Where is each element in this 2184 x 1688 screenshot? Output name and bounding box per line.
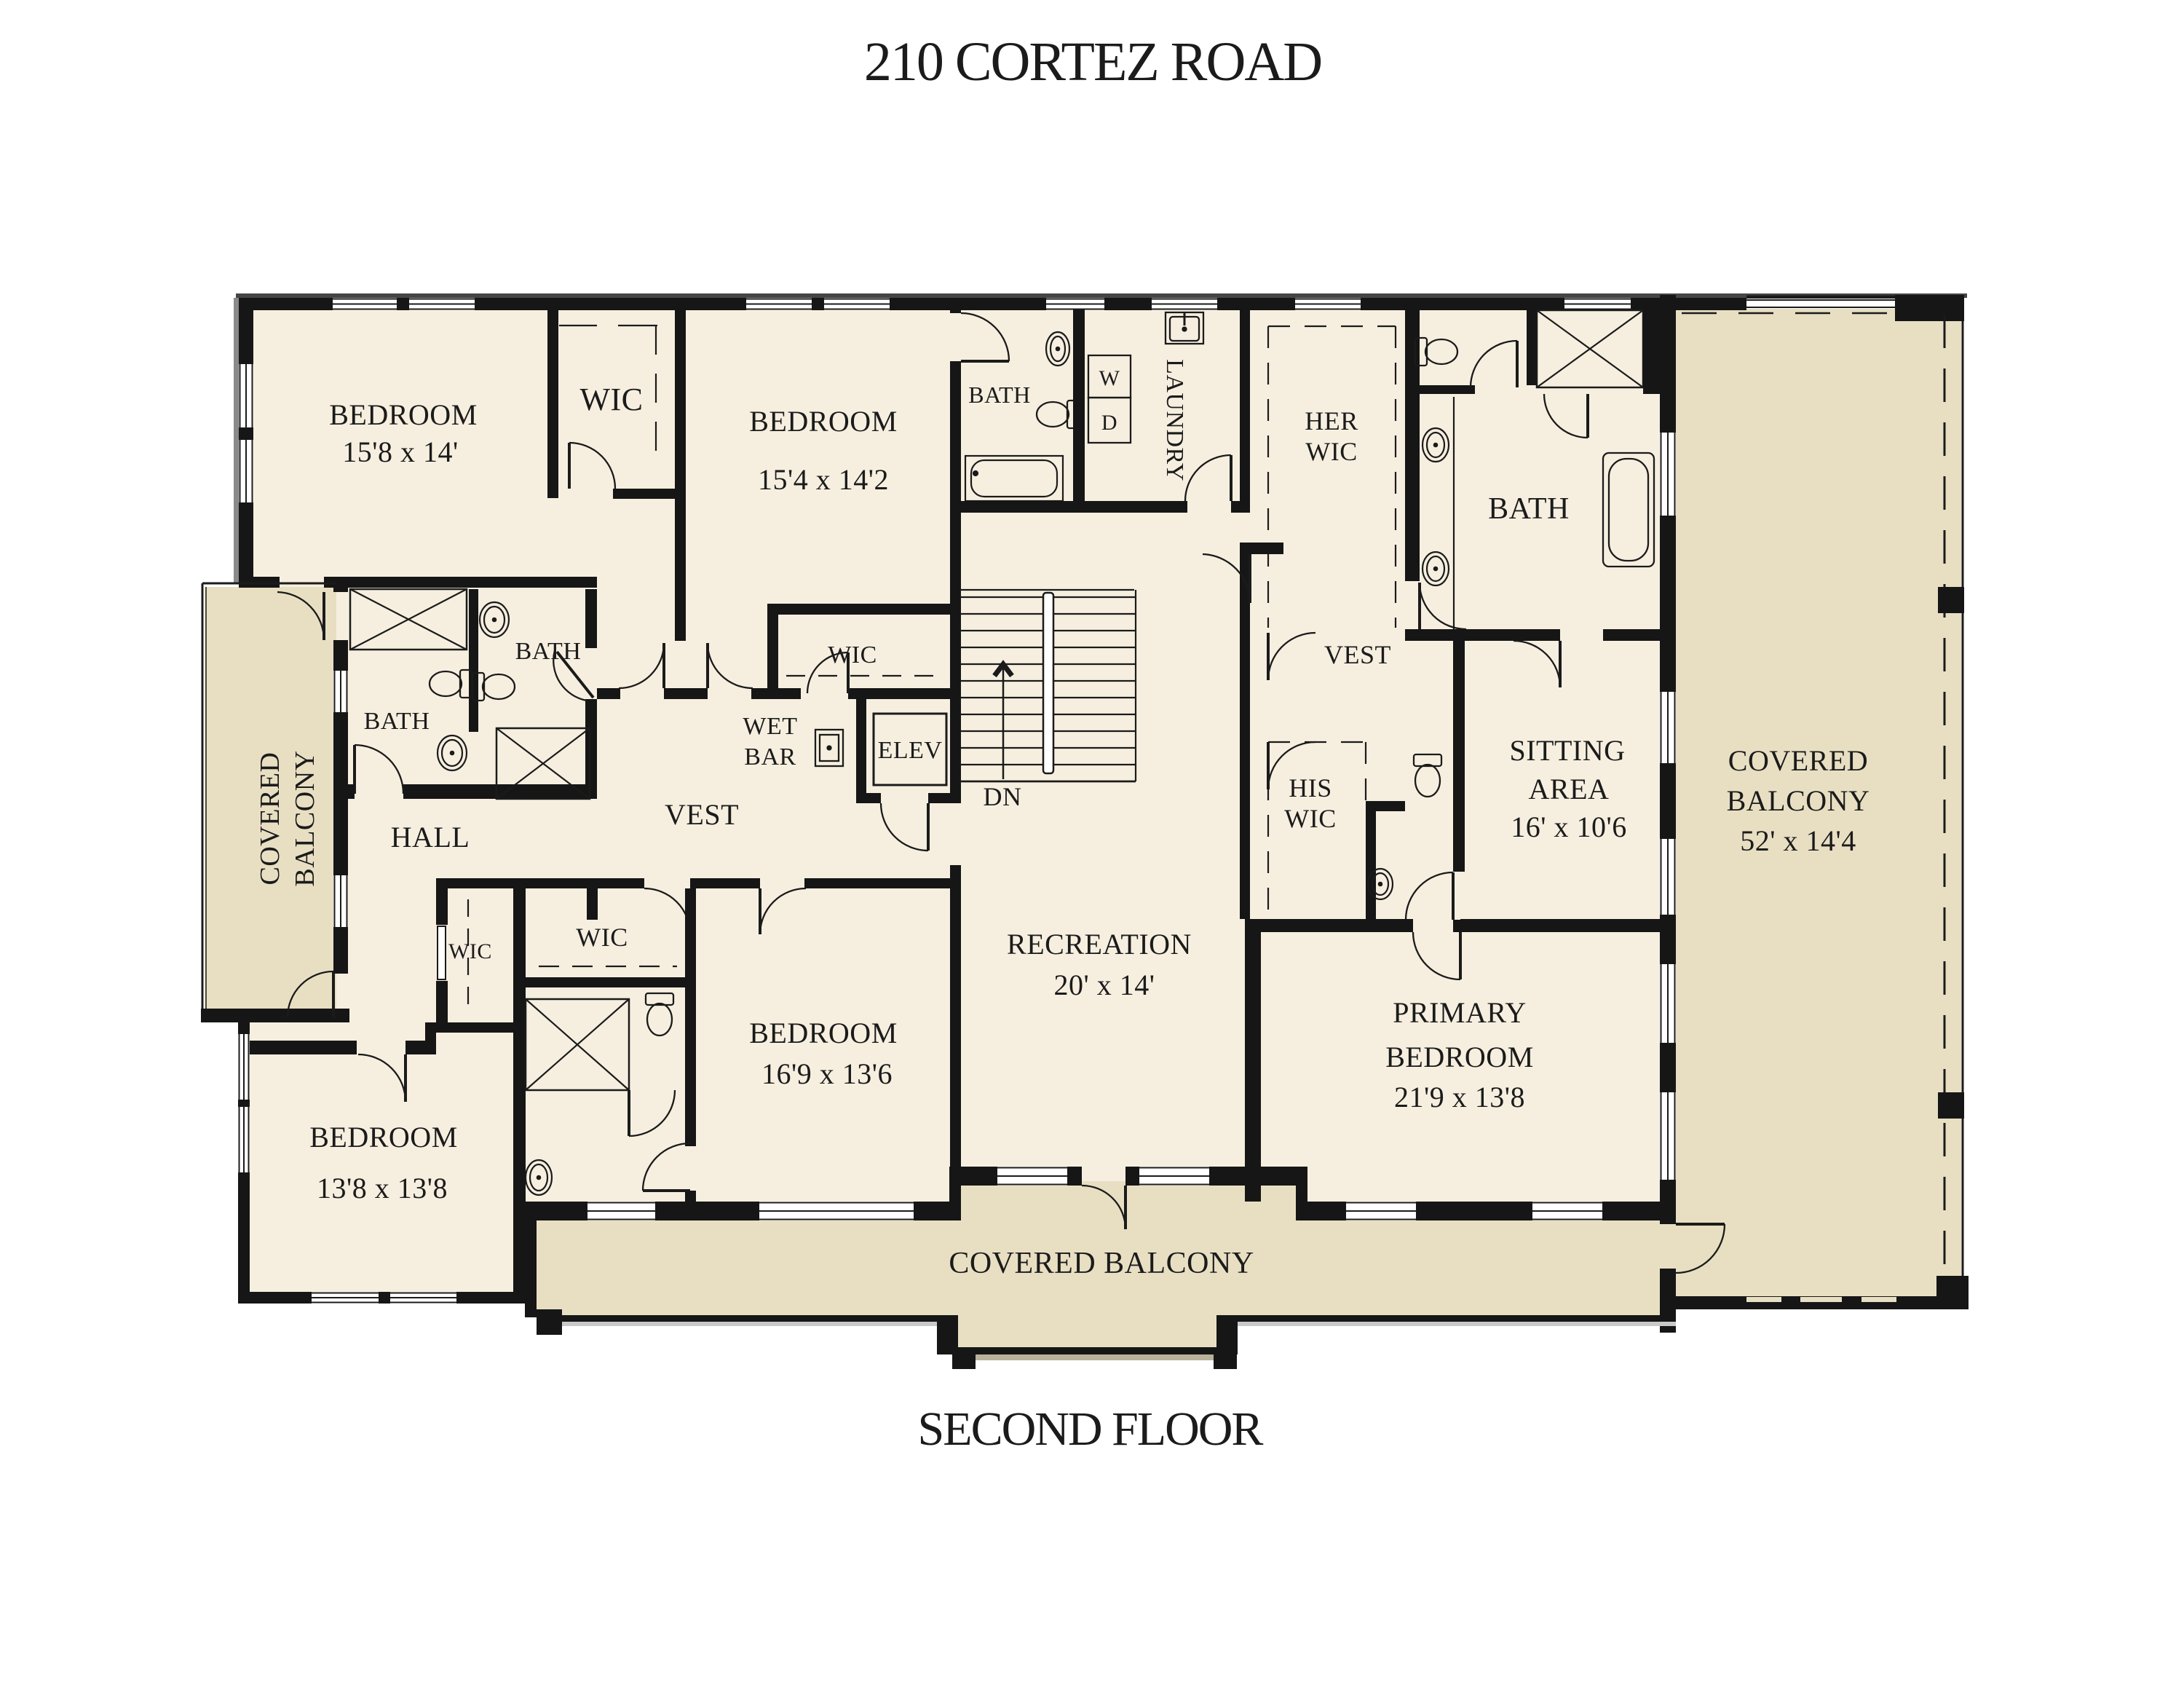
svg-text:20' x 14': 20' x 14': [1054, 969, 1155, 1001]
svg-text:BEDROOM: BEDROOM: [329, 398, 478, 431]
svg-text:BEDROOM: BEDROOM: [1385, 1041, 1534, 1073]
svg-text:RECREATION: RECREATION: [1007, 928, 1192, 961]
svg-text:ELEV: ELEV: [878, 737, 943, 764]
svg-text:HIS: HIS: [1289, 773, 1332, 802]
svg-text:PRIMARY: PRIMARY: [1393, 996, 1527, 1029]
svg-text:BEDROOM: BEDROOM: [749, 405, 898, 438]
svg-text:BATH: BATH: [364, 708, 430, 735]
svg-text:15'4 x 14'2: 15'4 x 14'2: [758, 463, 889, 496]
svg-text:DN: DN: [984, 782, 1022, 811]
svg-text:15'8 x 14': 15'8 x 14': [342, 435, 458, 468]
svg-text:COVERED: COVERED: [255, 752, 285, 886]
svg-text:COVERED: COVERED: [1728, 744, 1868, 777]
svg-text:16' x 10'6: 16' x 10'6: [1511, 811, 1626, 843]
svg-text:HALL: HALL: [391, 821, 470, 853]
svg-text:SECOND FLOOR: SECOND FLOOR: [918, 1403, 1264, 1456]
svg-text:210 CORTEZ ROAD: 210 CORTEZ ROAD: [864, 31, 1321, 92]
svg-text:D: D: [1101, 411, 1117, 435]
svg-text:BATH: BATH: [1488, 492, 1570, 526]
svg-text:SITTING: SITTING: [1509, 734, 1625, 767]
svg-text:WET: WET: [743, 713, 797, 740]
svg-text:VEST: VEST: [1324, 640, 1391, 669]
svg-text:AREA: AREA: [1529, 773, 1610, 805]
svg-text:WIC: WIC: [579, 382, 643, 417]
svg-text:LAUNDRY: LAUNDRY: [1161, 359, 1188, 481]
svg-text:16'9 x 13'6: 16'9 x 13'6: [761, 1057, 893, 1090]
svg-text:COVERED BALCONY: COVERED BALCONY: [949, 1247, 1254, 1280]
svg-text:BEDROOM: BEDROOM: [309, 1121, 458, 1153]
svg-text:BAR: BAR: [744, 744, 796, 770]
svg-text:BATH: BATH: [515, 638, 582, 665]
svg-text:HER: HER: [1305, 406, 1358, 435]
svg-text:BEDROOM: BEDROOM: [749, 1017, 898, 1049]
svg-text:WIC: WIC: [1284, 804, 1336, 833]
svg-text:WIC: WIC: [448, 939, 492, 963]
svg-text:WIC: WIC: [1305, 437, 1357, 466]
svg-text:W: W: [1099, 366, 1120, 390]
svg-text:13'8 x 13'8: 13'8 x 13'8: [317, 1172, 448, 1204]
svg-text:BALCONY: BALCONY: [1727, 784, 1870, 817]
svg-text:VEST: VEST: [665, 798, 739, 831]
svg-text:21'9 x 13'8: 21'9 x 13'8: [1394, 1081, 1525, 1113]
svg-text:WIC: WIC: [576, 923, 628, 952]
svg-text:BATH: BATH: [968, 382, 1031, 408]
svg-text:52' x 14'4: 52' x 14'4: [1740, 824, 1856, 857]
svg-text:WIC: WIC: [828, 642, 877, 669]
svg-text:BALCONY: BALCONY: [290, 750, 320, 886]
